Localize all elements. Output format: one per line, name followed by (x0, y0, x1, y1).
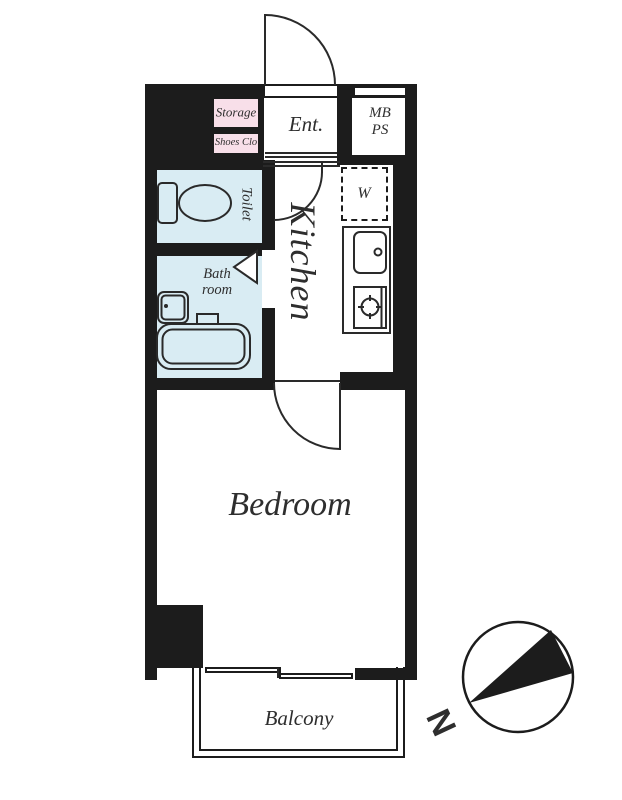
bath-step-icon (197, 314, 218, 324)
bathroom-door-icon (234, 251, 257, 283)
toilet-bowl-icon (179, 185, 231, 221)
entrance-label: Ent. (289, 113, 323, 137)
meter-box-line1: MB (369, 105, 391, 122)
floor-plan: Storage Shoes Clo Ent. MB PS Toilet W Ki… (0, 0, 622, 800)
washbasin-drain-icon (164, 304, 168, 308)
shoes-closet-label: Shoes Clo (215, 137, 257, 149)
washer-label: W (357, 185, 370, 203)
bathroom-line1: Bath (202, 266, 232, 282)
kitchen-label: Kitchen (283, 203, 323, 322)
bathtub-icon (157, 324, 250, 369)
meter-box-line2: PS (369, 122, 391, 139)
entrance-door-arc-icon (265, 15, 335, 85)
stove-burner-ticks-icon (358, 295, 382, 319)
bedroom-door-arc-icon (274, 383, 340, 449)
bathtub-inner-icon (163, 330, 245, 364)
bathroom-label: Bath room (202, 266, 232, 298)
storage-label: Storage (216, 106, 256, 121)
toilet-tank-icon (158, 183, 177, 223)
bathroom-line2: room (202, 282, 232, 298)
stove-burner-icon (362, 299, 379, 316)
meter-box-label: MB PS (369, 105, 391, 139)
toilet-label: Toilet (238, 187, 255, 221)
balcony-label: Balcony (265, 707, 334, 731)
bedroom-label: Bedroom (228, 486, 351, 524)
kitchen-faucet-icon (375, 249, 382, 256)
